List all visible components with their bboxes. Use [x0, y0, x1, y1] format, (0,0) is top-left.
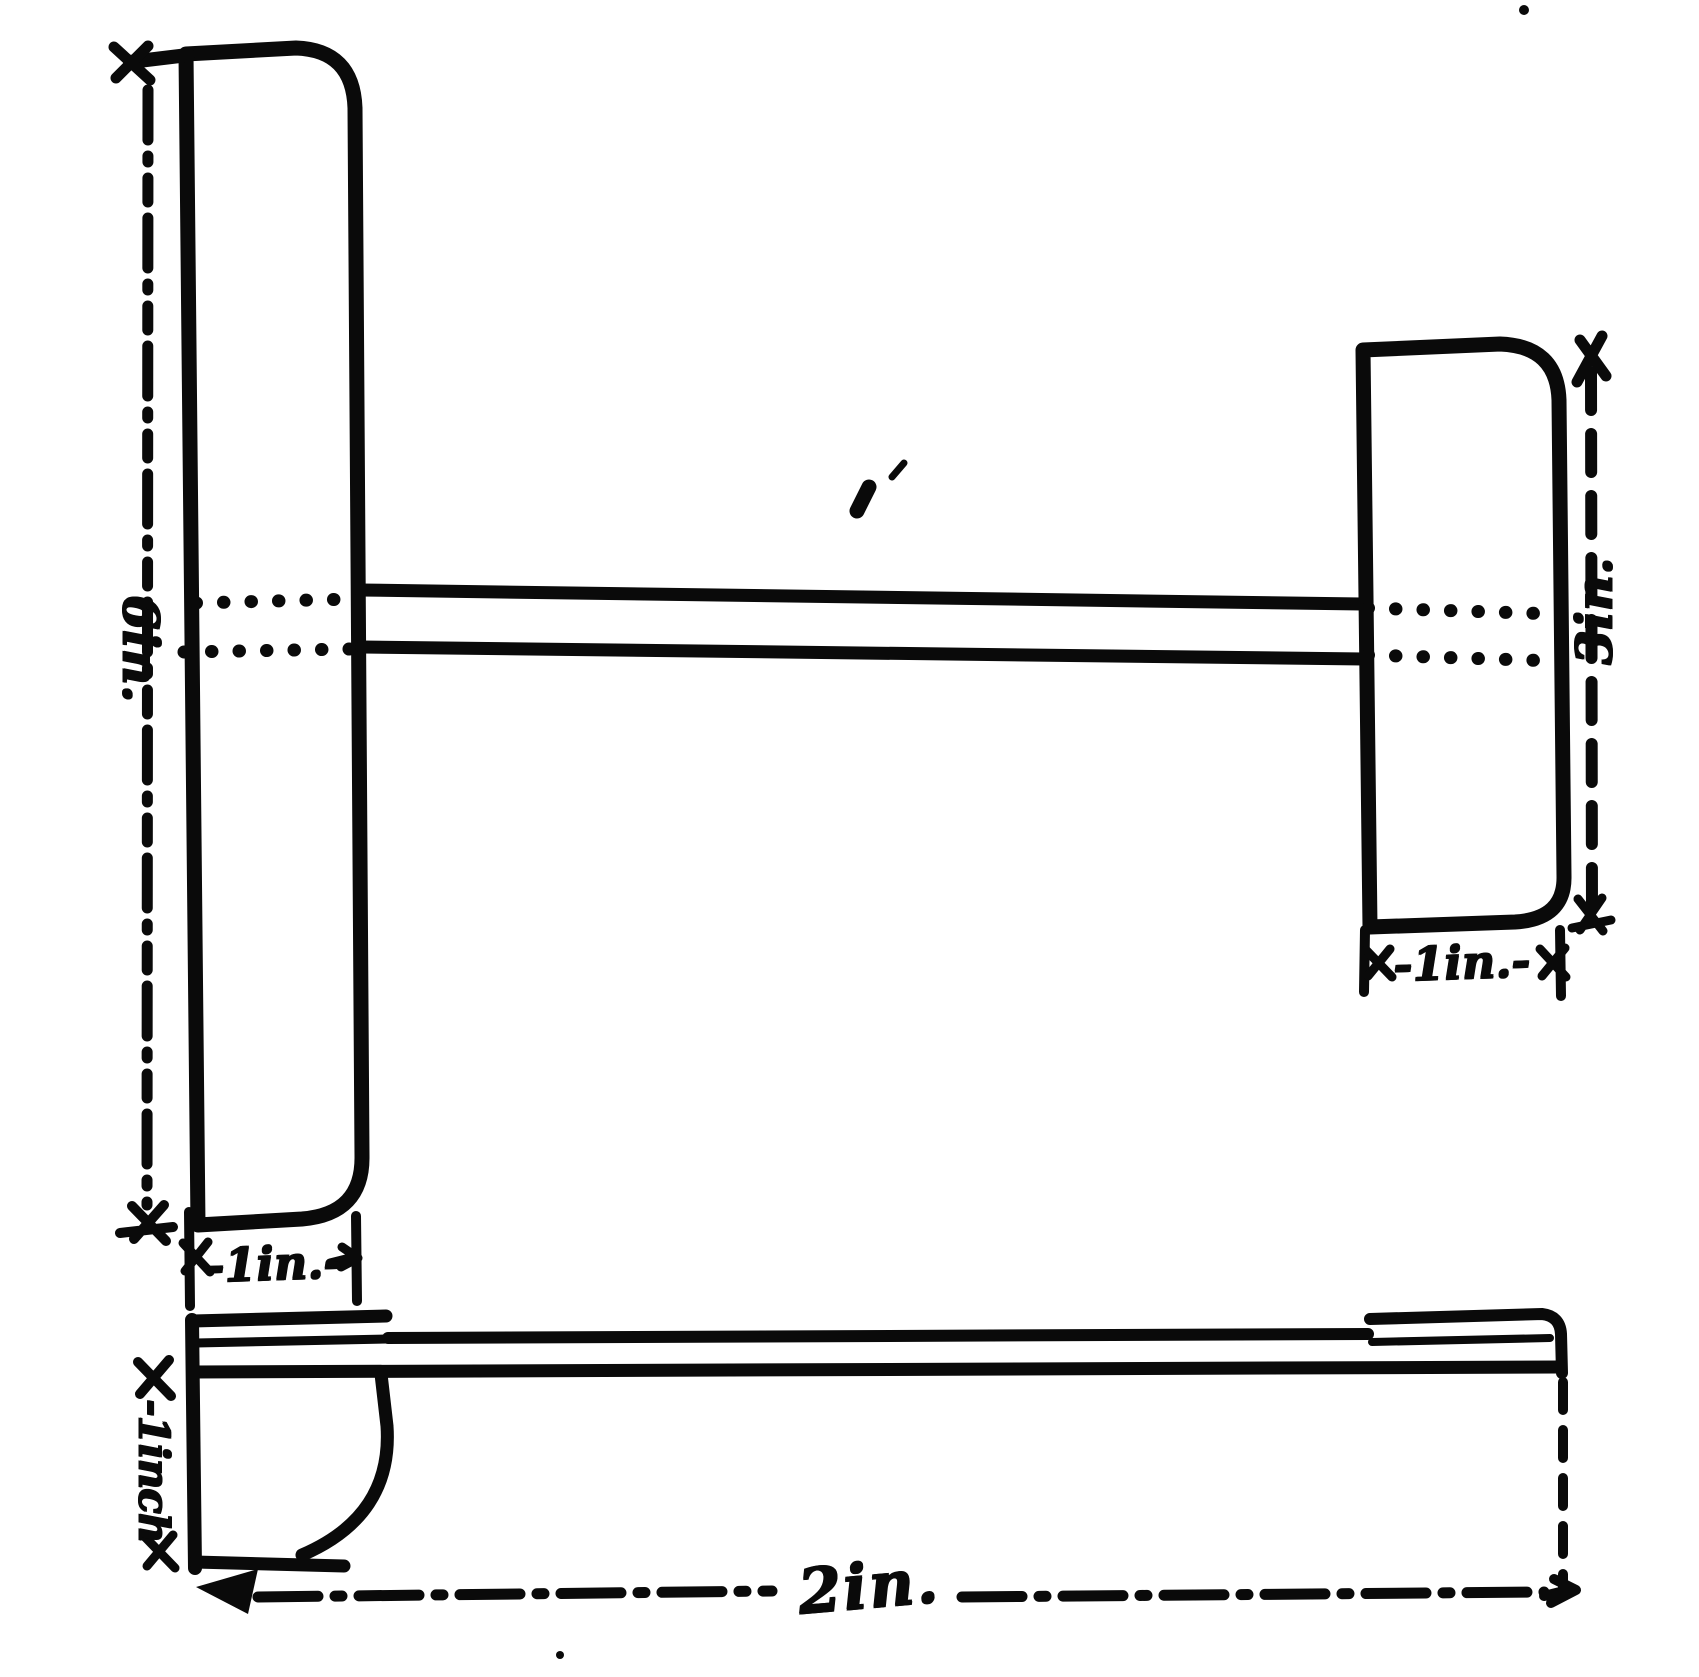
drawing-linework — [0, 0, 1699, 1677]
dim-total-arrow-right-icon — [1544, 1579, 1576, 1603]
stick-top-edge — [360, 590, 1362, 604]
hidden-line-left-top — [196, 599, 352, 603]
dim-1in-right-arrow-left-icon — [1366, 949, 1392, 977]
ink-speck-small — [892, 463, 904, 477]
dim-total-line-right — [962, 1592, 1544, 1597]
side-main-plane-top-edge — [193, 1316, 386, 1321]
side-stick-bottom-edge — [194, 1367, 1560, 1372]
side-main-plane-inner-edge — [196, 1339, 388, 1343]
dim-1in-right-tick-right — [1560, 930, 1561, 996]
tail-plane-outline — [1363, 344, 1564, 927]
side-front-curved-edge — [302, 1374, 387, 1555]
side-tail-plane-inner-edge — [1372, 1338, 1550, 1342]
dim-depth-arrow-top-icon — [138, 1360, 171, 1396]
dim-1in-right-tick-left — [1364, 930, 1365, 992]
dim-label-main-plane-height: 6in. — [116, 594, 166, 702]
dim-label-side-front-depth: -1inch — [133, 1398, 175, 1541]
ink-speck-large — [857, 487, 869, 511]
dim-label-tail-plane-width: -1in.- — [1392, 937, 1531, 988]
dim-total-arrow-left-icon — [196, 1569, 258, 1614]
side-stick-top-edge — [388, 1334, 1368, 1338]
side-front-left-edge — [192, 1320, 195, 1568]
hidden-line-right-top — [1368, 608, 1556, 614]
dim-total-line-left — [258, 1591, 772, 1597]
dim-1in-left-tick-right — [356, 1216, 357, 1301]
page-speck-bottom — [556, 1651, 564, 1659]
main-plane-outline — [186, 48, 362, 1225]
dim-label-tail-plane-height: 3in. — [1569, 558, 1619, 666]
hidden-line-left-bottom — [184, 649, 352, 652]
scanned-drawing-page: 6in. -1in.- 3in. -1in.- -1inch 2in. — [0, 0, 1699, 1677]
dim-label-main-plane-width: -1in.- — [204, 1238, 343, 1289]
side-front-bottom-edge — [195, 1562, 344, 1566]
stick-bottom-edge — [362, 647, 1364, 659]
dim-label-total-length: 2in. — [795, 1549, 941, 1623]
page-speck-top-right — [1519, 5, 1529, 15]
hidden-line-right-bottom — [1368, 655, 1556, 661]
